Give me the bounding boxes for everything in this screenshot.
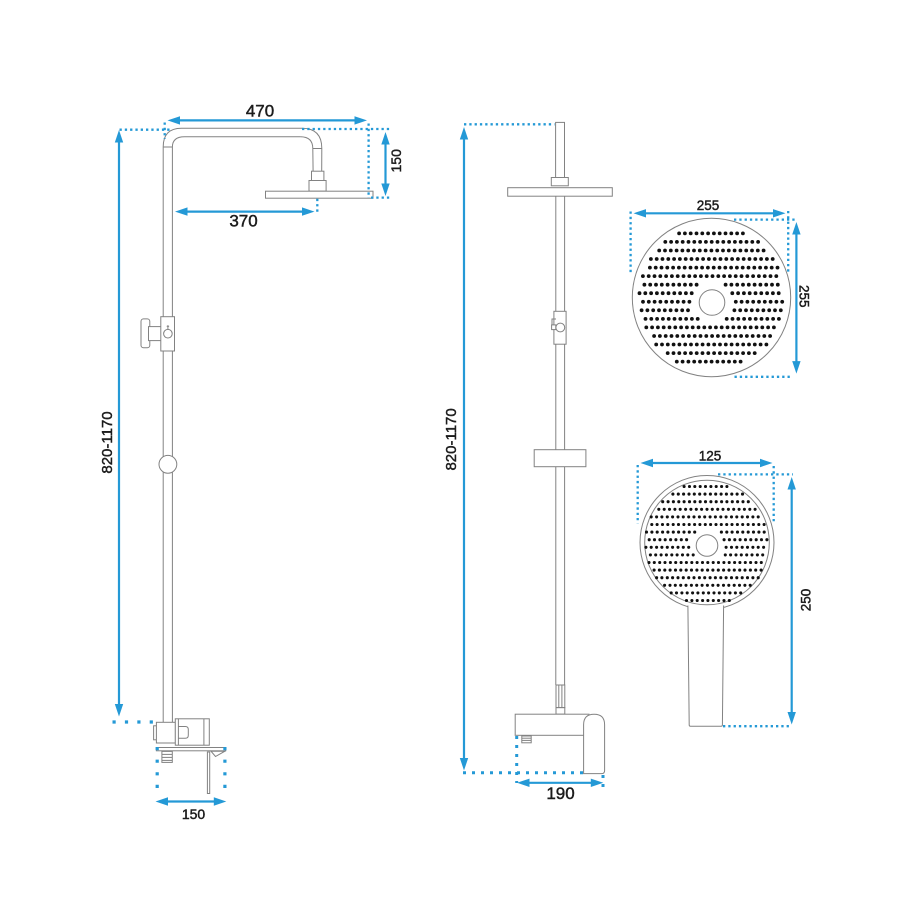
svg-text:125: 125 [699, 448, 722, 463]
svg-text:255: 255 [796, 285, 811, 308]
svg-text:255: 255 [697, 198, 720, 213]
svg-text:820-1170: 820-1170 [99, 411, 116, 473]
svg-text:190: 190 [546, 784, 574, 803]
svg-text:470: 470 [246, 102, 274, 121]
svg-text:150: 150 [388, 149, 404, 173]
svg-text:150: 150 [182, 806, 206, 822]
svg-text:370: 370 [229, 212, 257, 231]
svg-text:250: 250 [799, 589, 814, 612]
svg-text:820-1170: 820-1170 [443, 408, 460, 470]
